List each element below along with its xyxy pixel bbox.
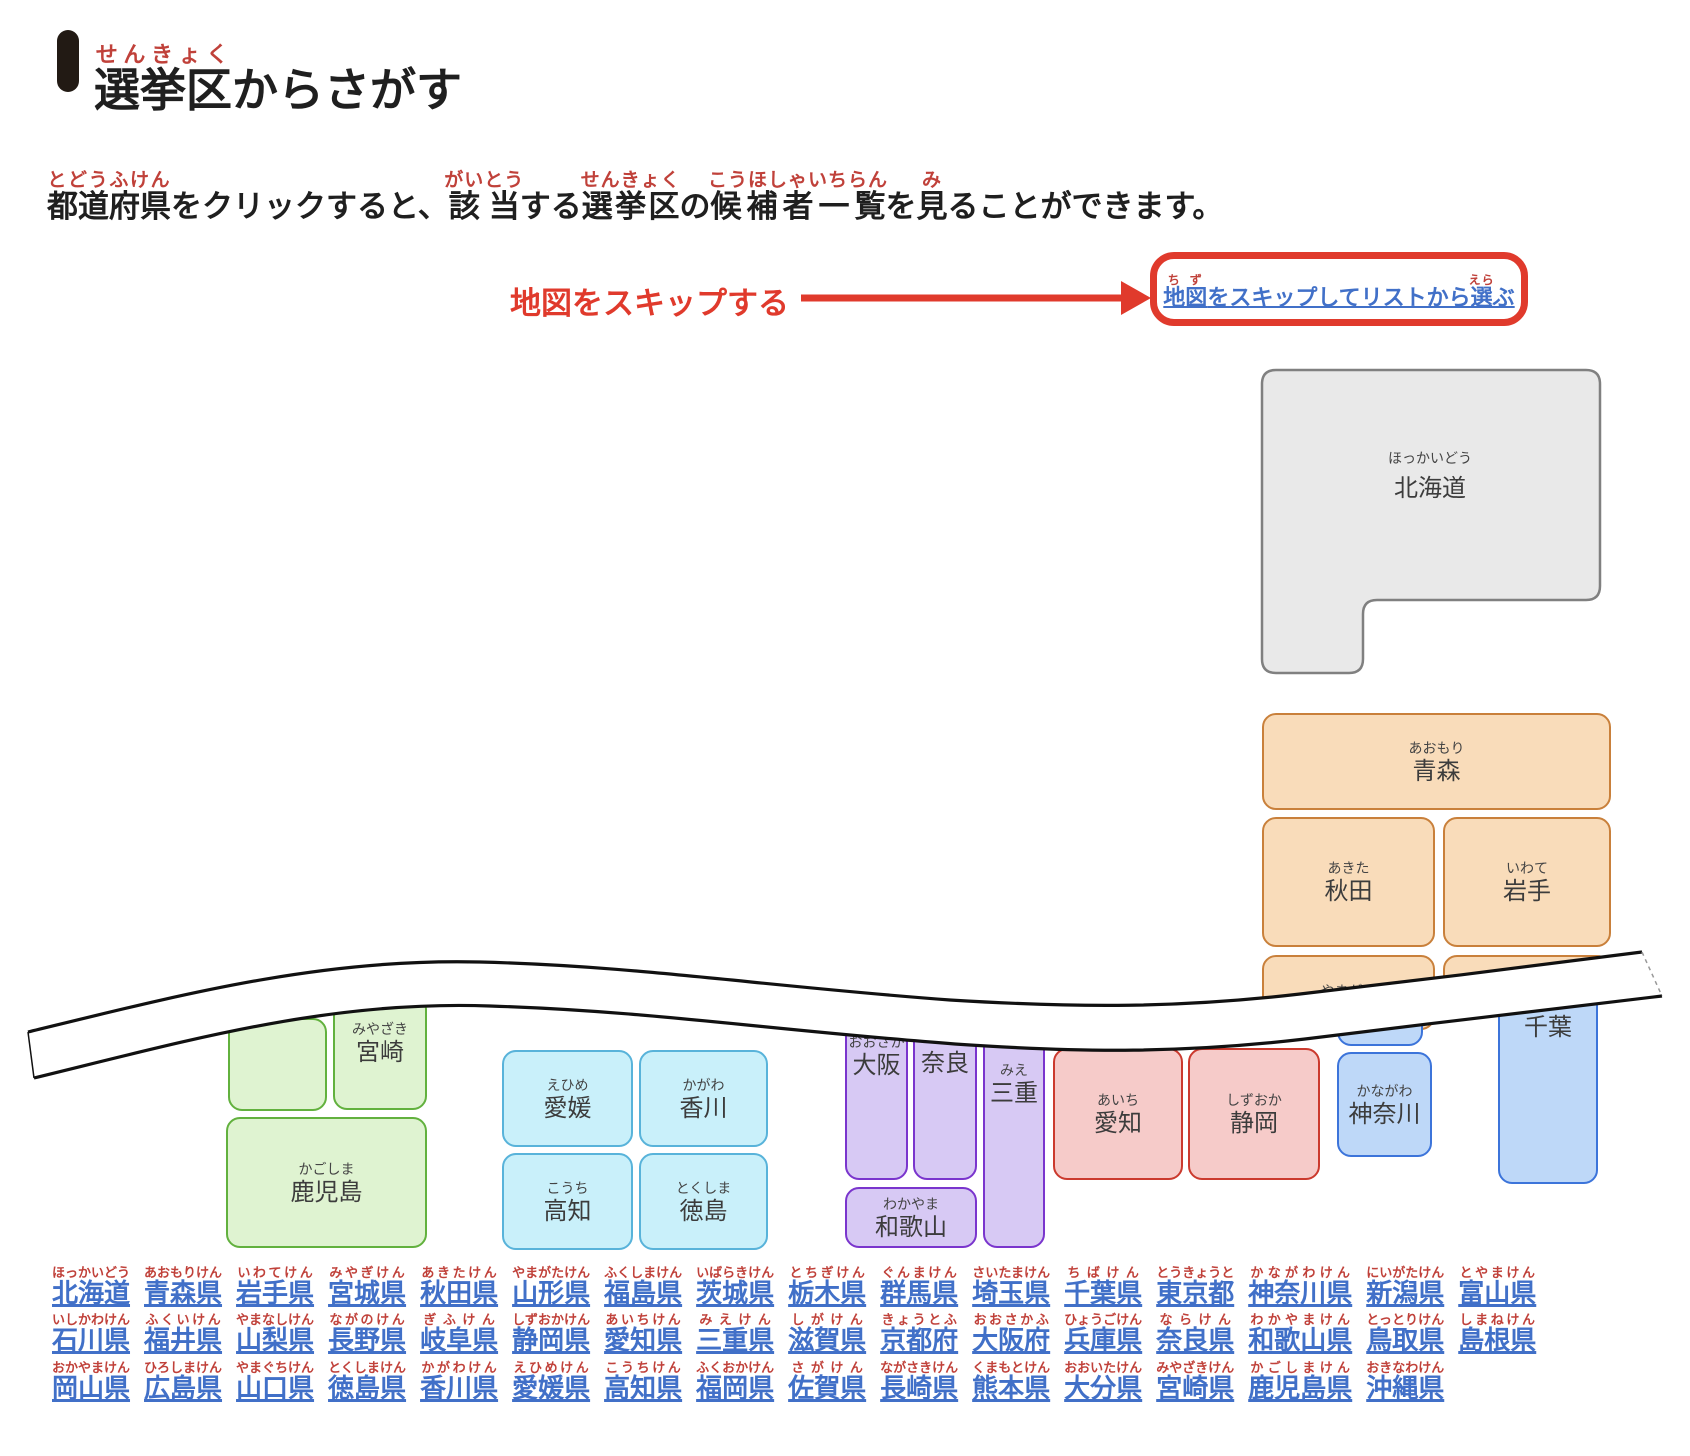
map-block-furigana: いわて	[1506, 858, 1548, 878]
map-block-furigana: あおもり	[1409, 738, 1465, 758]
map-block-nara[interactable]: 奈良	[913, 1022, 977, 1180]
map-block-tokushima[interactable]: とくしま徳島	[639, 1153, 768, 1250]
map-block-kochi[interactable]: こうち高知	[502, 1153, 633, 1250]
map-block-label: 宮崎	[356, 1039, 404, 1067]
map-block-kyushu-cut[interactable]	[228, 1018, 327, 1111]
map-block-mie[interactable]: みえ三重	[983, 1030, 1045, 1248]
map-block-furigana: えひめ	[547, 1075, 589, 1095]
map-block-kanagawa[interactable]: かながわ神奈川	[1337, 1052, 1432, 1157]
hokkaido-label: ほっかいどう 北海道	[1280, 448, 1580, 503]
map-block-furigana: こうち	[547, 1178, 589, 1198]
map-block-label: 静岡	[1230, 1110, 1278, 1138]
map-block-label: 鹿児島	[291, 1179, 363, 1207]
map-block-furigana: とくしま	[676, 1178, 732, 1198]
map-block-furigana: あきた	[1328, 858, 1370, 878]
map-block-label: 秋田	[1325, 878, 1373, 906]
map-block-furigana: かがわ	[683, 1075, 725, 1095]
map-block-furigana: かながわ	[1357, 1081, 1413, 1101]
map-block-chiba[interactable]: 千葉	[1498, 988, 1598, 1184]
map-block-label: 徳島	[680, 1198, 728, 1226]
map-block-kagoshima[interactable]: かごしま鹿児島	[226, 1117, 427, 1248]
map-block-shizuoka[interactable]: しずおか静岡	[1188, 1048, 1320, 1180]
map-block-label: 大阪	[853, 1052, 901, 1080]
map-block-furigana: みやざき	[352, 1019, 408, 1039]
map-block-aomori[interactable]: あおもり青森	[1262, 713, 1611, 810]
map-block-label: 神奈川	[1349, 1101, 1421, 1129]
map-block-label: 香川	[680, 1095, 728, 1123]
map-block-label: 愛媛	[544, 1095, 592, 1123]
map-block-label: 青森	[1413, 758, 1461, 786]
map-block-label: 奈良	[921, 1050, 969, 1078]
map-block-wakayama[interactable]: わかやま和歌山	[845, 1187, 977, 1248]
map-block-osaka[interactable]: おおさか大阪	[845, 1022, 908, 1180]
map-block-miyazaki[interactable]: みやざき宮崎	[333, 995, 427, 1110]
map-block-tokyo-cut[interactable]	[1337, 998, 1423, 1046]
map-block-furigana: おおさか	[849, 1032, 905, 1052]
map-block-label: 高知	[544, 1198, 592, 1226]
map-block-iwate[interactable]: いわて岩手	[1443, 817, 1611, 947]
map-block-kagawa[interactable]: かがわ香川	[639, 1050, 768, 1147]
map-block-label: 三重	[990, 1080, 1038, 1108]
map-block-furigana: わかやま	[883, 1194, 939, 1214]
map-block-furigana: しずおか	[1226, 1090, 1282, 1110]
map-block-akita[interactable]: あきた秋田	[1262, 817, 1435, 947]
map-block-label: 千葉	[1524, 1014, 1572, 1042]
map-block-furigana: かごしま	[299, 1159, 355, 1179]
map-block-label: 岩手	[1503, 878, 1551, 906]
map-block-furigana: みえ	[1000, 1060, 1028, 1080]
map-block-ehime[interactable]: えひめ愛媛	[502, 1050, 633, 1147]
map-block-label: 愛知	[1094, 1110, 1142, 1138]
map-block-furigana: あいち	[1097, 1090, 1139, 1110]
map-block-aichi[interactable]: あいち愛知	[1053, 1048, 1183, 1180]
prefecture-map: ほっかいどう 北海道 あおもり青森あきた秋田いわて岩手やまがたみやざき宮崎かごし…	[0, 0, 1690, 1456]
map-block-label: 和歌山	[875, 1214, 947, 1242]
